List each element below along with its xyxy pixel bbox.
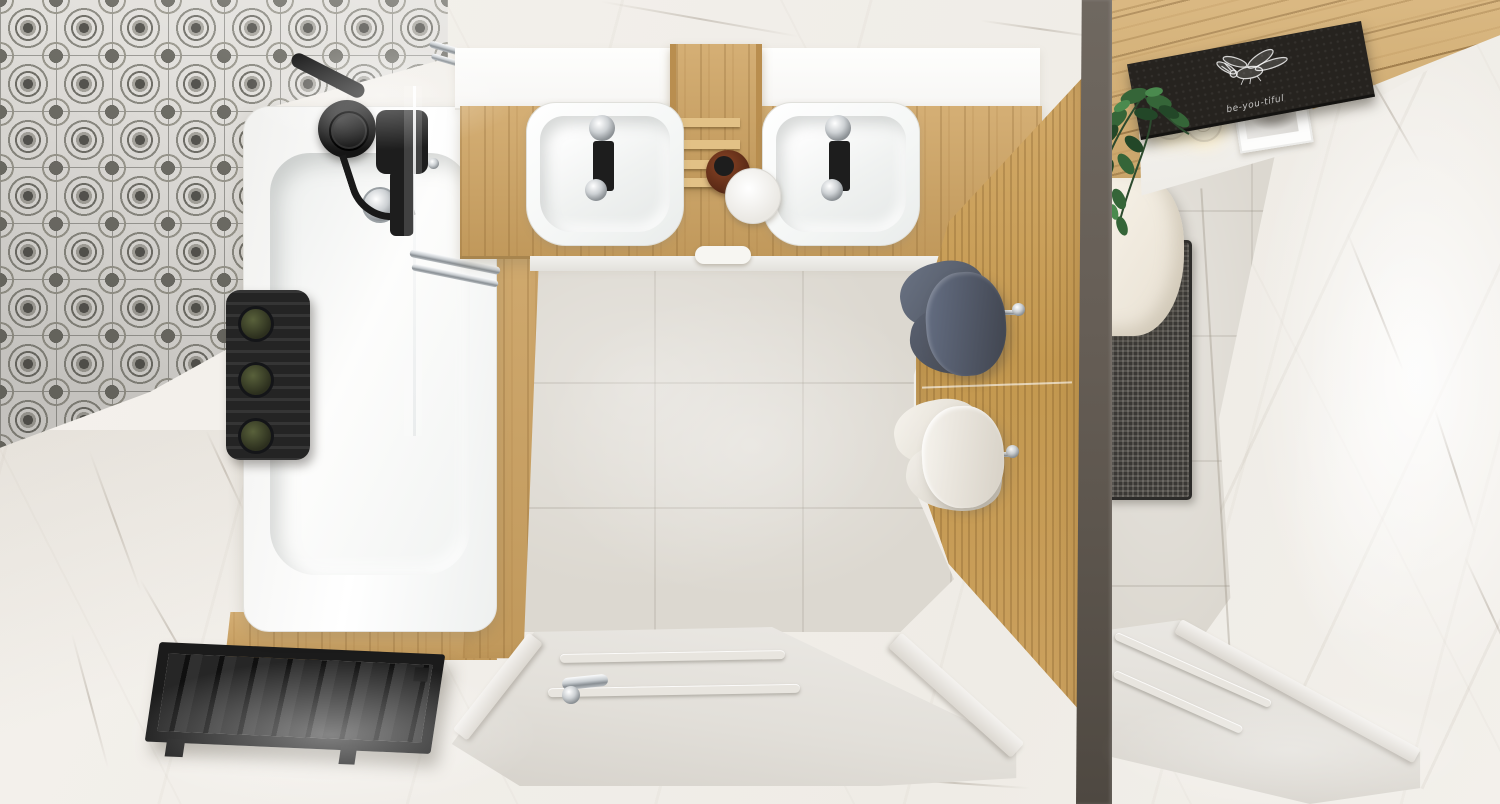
white-towel bbox=[892, 392, 1014, 522]
bottle bbox=[238, 306, 274, 342]
shower-head-ring bbox=[329, 111, 369, 151]
jar-lid bbox=[714, 156, 734, 176]
glass-screen-edge bbox=[413, 86, 416, 436]
mirror-shelf-right bbox=[748, 48, 1040, 110]
concrete-floor bbox=[508, 254, 954, 632]
dark-grey-towel bbox=[898, 256, 1013, 396]
bench-leg bbox=[165, 738, 186, 757]
shower-caddy bbox=[226, 290, 310, 460]
marble-vein bbox=[601, 1, 798, 38]
white-dish bbox=[725, 168, 781, 224]
right-basin bbox=[762, 102, 920, 246]
bottle bbox=[238, 418, 274, 454]
left-basin bbox=[526, 102, 684, 246]
marble-vein bbox=[88, 450, 141, 592]
divider-wall bbox=[1076, 0, 1112, 804]
ladder-rung bbox=[680, 140, 740, 149]
left-drain bbox=[585, 179, 607, 201]
mixer-lever bbox=[289, 51, 367, 101]
bench-leg bbox=[413, 667, 429, 682]
rolled-towel bbox=[695, 246, 751, 264]
chalkboard-text: be-you-tiful bbox=[1226, 94, 1286, 116]
bathroom-render: be-you-tiful bbox=[0, 0, 1500, 804]
left-faucet bbox=[589, 115, 615, 141]
bottle bbox=[238, 362, 274, 398]
shower-mixer bbox=[282, 58, 452, 243]
right-drain bbox=[821, 179, 843, 201]
towel-hook-knob bbox=[1012, 303, 1025, 316]
bench-leg bbox=[338, 746, 357, 765]
door-handle-base bbox=[562, 686, 580, 704]
mirror-shelf-left bbox=[455, 48, 677, 110]
mixer-chrome-nub bbox=[428, 158, 439, 169]
ladder-rung bbox=[680, 118, 740, 127]
bench-slats bbox=[145, 642, 446, 754]
marble-vein bbox=[71, 633, 109, 769]
right-faucet bbox=[825, 115, 851, 141]
black-slat-bench bbox=[145, 642, 446, 754]
